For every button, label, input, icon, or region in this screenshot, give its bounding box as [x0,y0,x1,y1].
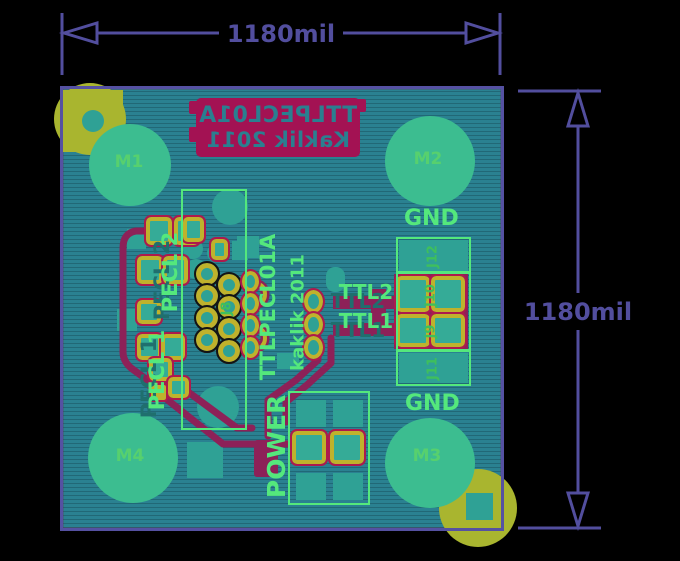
dimension-arrow-up-icon [568,93,588,126]
dimension-arrow-down-icon [568,493,588,526]
dimension-annotations: 1180mil 1180mil [0,0,680,561]
dimension-top-label: 1180mil [227,20,335,48]
dimension-right-label: 1180mil [524,298,632,326]
dimension-arrow-right-icon [466,23,498,43]
pcb-preview-canvas: M1 M2 M3 M4 TTLPECL01A Kaklik 2011 [0,0,680,561]
dimension-arrow-left-icon [64,23,97,43]
